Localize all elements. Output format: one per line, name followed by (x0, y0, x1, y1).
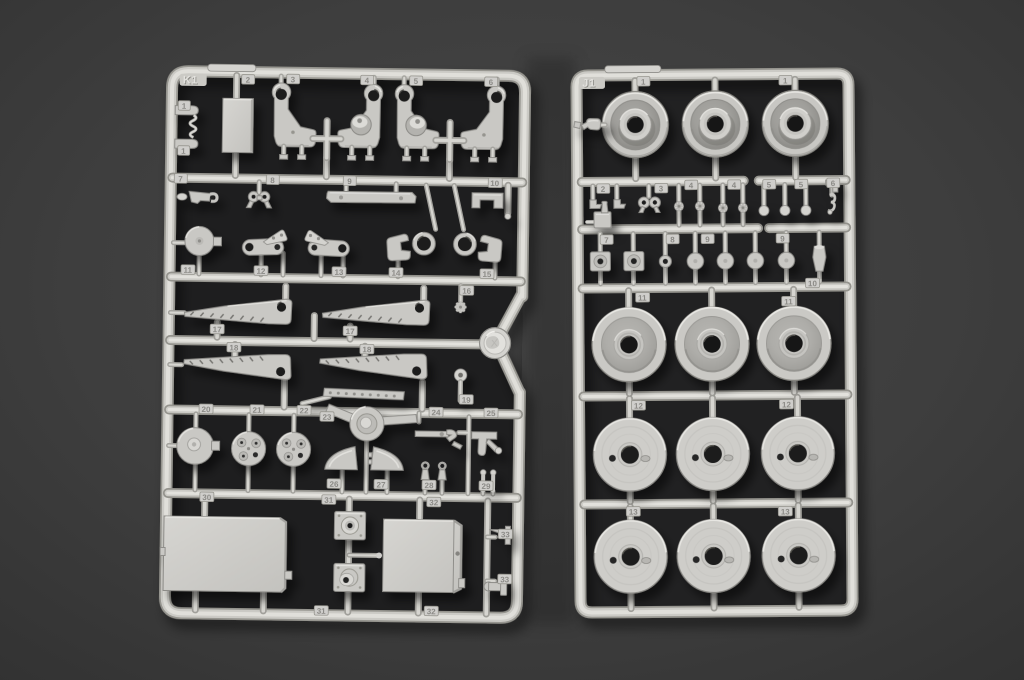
svg-text:17: 17 (213, 325, 223, 334)
svg-text:13: 13 (629, 508, 639, 517)
svg-text:18: 18 (362, 345, 372, 354)
svg-text:25: 25 (486, 409, 496, 418)
svg-text:1: 1 (641, 78, 646, 87)
svg-text:32: 32 (429, 498, 439, 507)
svg-text:29: 29 (481, 482, 491, 491)
svg-text:7: 7 (604, 236, 609, 245)
svg-text:27: 27 (376, 480, 386, 489)
svg-text:5: 5 (414, 77, 419, 86)
svg-text:32: 32 (427, 607, 437, 616)
svg-text:1: 1 (181, 147, 186, 156)
svg-text:17: 17 (346, 327, 356, 336)
svg-text:24: 24 (431, 408, 441, 417)
svg-text:3: 3 (291, 75, 296, 84)
svg-text:10: 10 (490, 179, 500, 188)
svg-text:23: 23 (322, 413, 332, 422)
svg-text:33: 33 (500, 575, 510, 584)
svg-text:14: 14 (391, 269, 401, 278)
svg-text:8: 8 (270, 176, 275, 185)
svg-text:7: 7 (178, 175, 183, 184)
svg-text:9: 9 (780, 234, 785, 243)
svg-text:15: 15 (482, 270, 492, 279)
svg-text:18: 18 (229, 343, 239, 352)
svg-text:8: 8 (670, 235, 675, 244)
svg-text:33: 33 (501, 530, 511, 539)
svg-text:9: 9 (347, 177, 352, 186)
svg-text:26: 26 (329, 480, 339, 489)
svg-text:12: 12 (782, 400, 792, 409)
svg-text:31: 31 (317, 607, 327, 616)
svg-text:13: 13 (334, 268, 344, 277)
svg-text:19: 19 (462, 396, 472, 405)
svg-text:30: 30 (202, 493, 212, 502)
svg-text:4: 4 (689, 181, 694, 190)
svg-text:11: 11 (784, 297, 793, 306)
svg-text:13: 13 (781, 507, 791, 516)
svg-text:1: 1 (783, 76, 788, 85)
svg-text:K1: K1 (183, 74, 198, 86)
svg-text:10: 10 (808, 279, 818, 288)
svg-text:12: 12 (634, 402, 644, 411)
svg-text:11: 11 (183, 266, 192, 275)
svg-text:3: 3 (659, 184, 664, 193)
svg-text:4: 4 (732, 181, 737, 190)
svg-text:28: 28 (424, 481, 434, 490)
svg-text:1: 1 (182, 102, 187, 111)
svg-text:5: 5 (799, 180, 804, 189)
svg-text:6: 6 (831, 179, 836, 188)
svg-text:5: 5 (767, 181, 772, 190)
svg-text:9: 9 (705, 235, 710, 244)
svg-text:6: 6 (489, 78, 494, 87)
svg-text:11: 11 (638, 294, 647, 303)
svg-text:22: 22 (299, 406, 309, 415)
svg-text:4: 4 (365, 76, 370, 85)
svg-text:31: 31 (324, 496, 334, 505)
svg-text:20: 20 (202, 405, 212, 414)
svg-text:12: 12 (256, 267, 266, 276)
svg-text:2: 2 (601, 185, 606, 194)
svg-text:16: 16 (462, 287, 472, 296)
svg-text:21: 21 (253, 406, 263, 415)
svg-text:2: 2 (246, 76, 251, 85)
svg-text:J1: J1 (582, 78, 595, 90)
